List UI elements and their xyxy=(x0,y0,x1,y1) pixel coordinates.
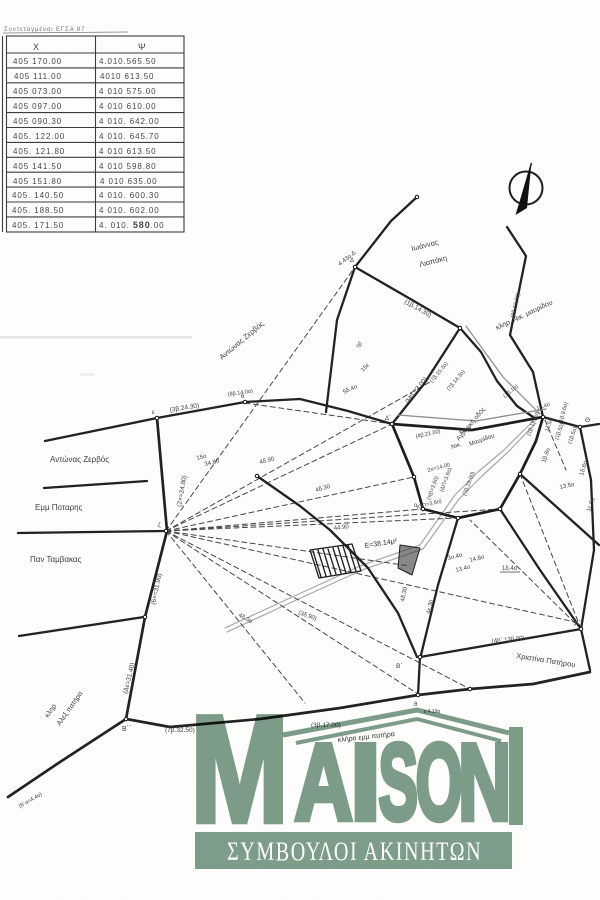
svg-text:405 141.50: 405 141.50 xyxy=(13,162,62,171)
svg-text:Δ΄: Δ΄ xyxy=(385,416,391,422)
svg-text:Χ: Χ xyxy=(33,42,40,52)
svg-text:4 010. 645.70: 4 010. 645.70 xyxy=(99,132,160,141)
svg-text:4 010 635.00: 4 010 635.00 xyxy=(100,177,158,186)
svg-text:Αντώνας Ζερβός: Αντώνας Ζερβός xyxy=(50,455,109,464)
svg-text:405 111.00: 405 111.00 xyxy=(14,72,62,81)
svg-text:Β΄: Β΄ xyxy=(396,663,403,670)
svg-text:Α΄: Α΄ xyxy=(574,621,581,628)
svg-text:N: N xyxy=(458,721,511,843)
svg-text:405 097.00: 405 097.00 xyxy=(13,102,62,111)
svg-text:S: S xyxy=(378,721,418,843)
svg-text:M: M xyxy=(190,684,288,854)
svg-text:405. 122.00: 405. 122.00 xyxy=(13,132,65,141)
svg-text:405. 188.50: 405. 188.50 xyxy=(12,206,64,215)
svg-text:4. 010. 580.00: 4. 010. 580.00 xyxy=(99,220,164,230)
svg-text:405. 121.80: 405. 121.80 xyxy=(13,147,65,156)
svg-text:4 010. 642.00: 4 010. 642.00 xyxy=(99,117,160,126)
svg-text:ΣΥΜΒΟΥΛΟΙ ΑΚΙΝΗΤΩΝ: ΣΥΜΒΟΥΛΟΙ ΑΚΙΝΗΤΩΝ xyxy=(227,838,482,867)
svg-text:4 010 613.50: 4 010 613.50 xyxy=(99,147,157,156)
svg-text:Δ: Δ xyxy=(350,258,354,264)
svg-text:405 090.30: 405 090.30 xyxy=(13,117,62,126)
svg-text:405 170.00: 405 170.00 xyxy=(13,57,62,66)
svg-text:ζ: ζ xyxy=(158,523,161,529)
svg-text:4010 613.50: 4010 613.50 xyxy=(100,72,154,81)
svg-text:Συντεταγμέναι ΕΓΣΑ 87: Συντεταγμέναι ΕΓΣΑ 87 xyxy=(4,26,85,33)
svg-text:Εμμ Ποταρης: Εμμ Ποταρης xyxy=(35,503,83,512)
svg-text:4 010 598.80: 4 010 598.80 xyxy=(99,162,157,171)
svg-text:4.010.565.50: 4.010.565.50 xyxy=(99,57,157,66)
svg-text:4 010 575.00: 4 010 575.00 xyxy=(99,87,157,96)
svg-text:4 010. 600.30: 4 010. 600.30 xyxy=(99,191,160,200)
svg-text:I: I xyxy=(350,721,381,843)
svg-text:A: A xyxy=(295,722,353,844)
svg-text:405 073.00: 405 073.00 xyxy=(13,87,62,96)
svg-text:4 010 610.00: 4 010 610.00 xyxy=(99,102,157,111)
svg-text:O: O xyxy=(416,721,463,843)
svg-text:405. 140.50: 405. 140.50 xyxy=(12,191,64,200)
svg-text:4 010. 602.00: 4 010. 602.00 xyxy=(99,206,160,215)
svg-text:405. 171.50: 405. 171.50 xyxy=(12,221,64,230)
svg-text:Θ: Θ xyxy=(585,417,590,424)
svg-text:ε: ε xyxy=(152,410,155,416)
svg-text:Ψ: Ψ xyxy=(138,42,146,52)
svg-text:Παν Ταμβακας: Παν Ταμβακας xyxy=(30,555,81,564)
svg-text:1δ.4ο: 1δ.4ο xyxy=(502,566,518,572)
svg-text:405 151.80: 405 151.80 xyxy=(13,177,62,186)
svg-text:Β΄΄: Β΄΄ xyxy=(122,726,131,733)
